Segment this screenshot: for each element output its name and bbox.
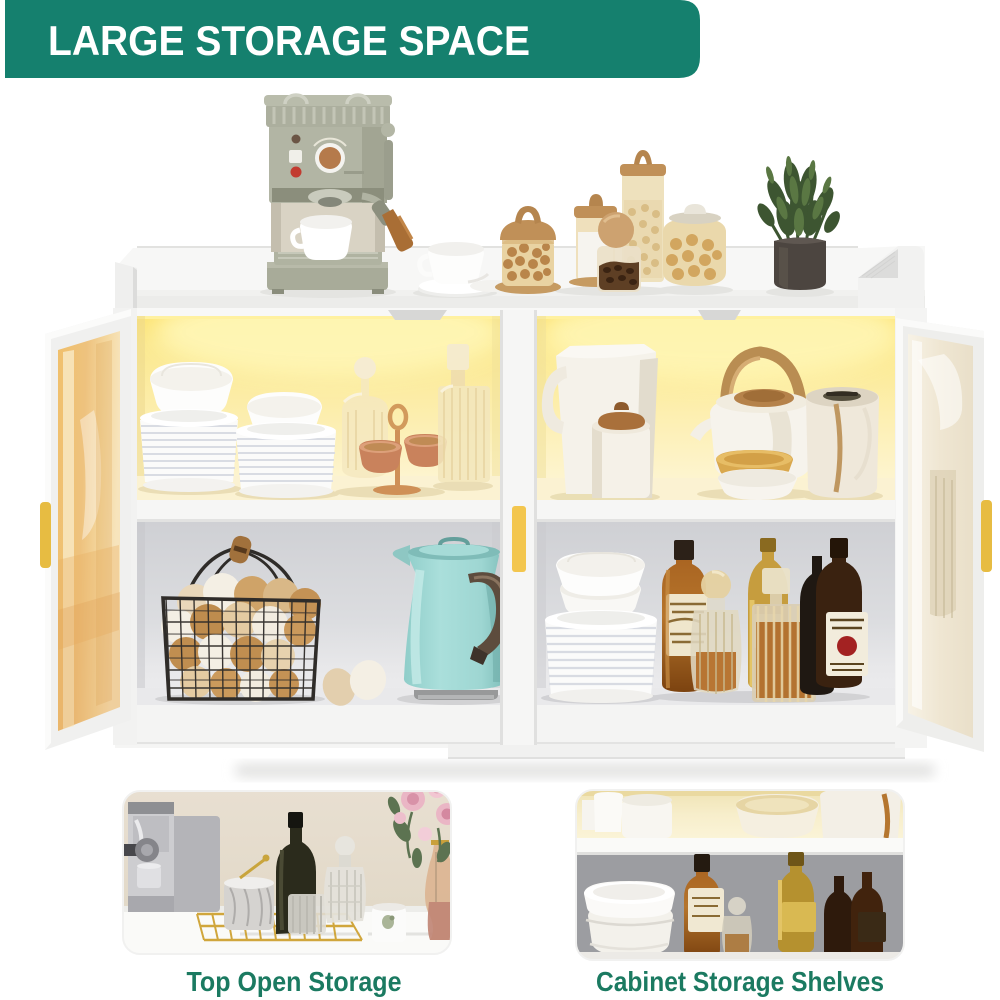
svg-text:Top Open Storage: Top Open Storage [187, 966, 402, 997]
svg-text:Cabinet Storage Shelves: Cabinet Storage Shelves [596, 966, 884, 997]
svg-text:LARGE STORAGE SPACE: LARGE STORAGE SPACE [48, 17, 530, 64]
